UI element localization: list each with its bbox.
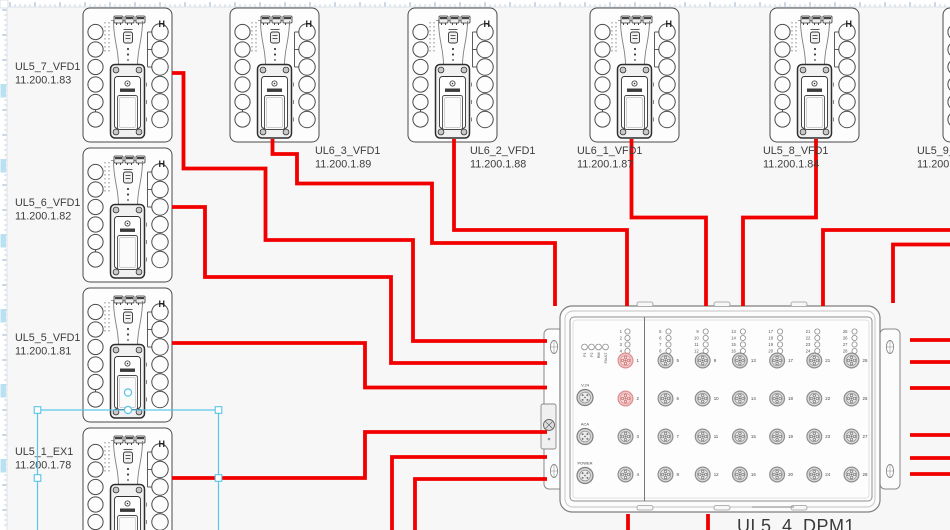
device-UL5_8_VFD1[interactable]: H bbox=[770, 8, 859, 142]
dpm-side-port-ACA bbox=[577, 429, 593, 445]
device-label-UL6_1_VFD1: UL6_1_VFD111.200.1.87 bbox=[577, 145, 642, 171]
dpm-port-14 bbox=[733, 391, 748, 406]
indicator-led bbox=[778, 342, 783, 347]
indicator-led bbox=[815, 329, 820, 334]
wire-w12[interactable] bbox=[893, 245, 950, 304]
dpm-port-number: 17 bbox=[788, 358, 793, 363]
device-label-UL5_7_VFD1: UL5_7_VFD111.200.1.83 bbox=[15, 61, 80, 87]
dpm-port-number: 26 bbox=[863, 396, 868, 401]
dpm-port-number: 18 bbox=[788, 396, 793, 401]
dpm-port-21 bbox=[807, 353, 822, 368]
status-led-FAULT bbox=[603, 344, 609, 350]
indicator-number: 19 bbox=[768, 342, 773, 347]
status-led-label: P2 bbox=[590, 353, 594, 357]
indicator-number: 22 bbox=[806, 336, 811, 341]
device-label-UL6_3_VFD1: UL6_3_VFD111.200.1.89 bbox=[315, 145, 380, 171]
dpm-port-22 bbox=[807, 391, 822, 406]
device-label-UL5_1_EX1: UL5_1_EX111.200.1.78 bbox=[15, 446, 73, 472]
h-symbol: H bbox=[666, 19, 673, 29]
device-label-UL5_8_VFD1: UL5_8_VFD111.200.1.84 bbox=[763, 145, 828, 171]
h-symbol: H bbox=[159, 19, 166, 29]
wire-w6[interactable] bbox=[415, 479, 547, 530]
status-led-label: FAULT bbox=[604, 352, 608, 364]
dpm-port-5 bbox=[658, 353, 673, 368]
dpm-device-label: UL5_4_DPM1 bbox=[737, 516, 855, 530]
status-led-P2 bbox=[589, 344, 595, 350]
indicator-number: 16 bbox=[731, 349, 736, 354]
selection-handle-mid-left[interactable] bbox=[34, 475, 41, 482]
dpm-port-number: 22 bbox=[825, 396, 830, 401]
indicator-led bbox=[815, 335, 820, 340]
dpm-port-23 bbox=[807, 429, 822, 444]
diagram-editor-canvas[interactable]: HHHHHHHHH P1P2RMFAULT12341234V.24ACAPOWE… bbox=[0, 0, 950, 530]
device-label-UL5_5_VFD1: UL5_5_VFD111.200.1.81 bbox=[15, 332, 80, 358]
dpm-port-number: 24 bbox=[825, 472, 830, 477]
wire-UL5_5_VFD1[interactable] bbox=[172, 343, 547, 388]
h-symbol: H bbox=[846, 19, 853, 29]
dpm-port-number: 13 bbox=[751, 358, 756, 363]
dpm-port-number: 14 bbox=[751, 396, 756, 401]
wire-w11[interactable] bbox=[823, 230, 950, 306]
indicator-number: 12 bbox=[694, 349, 699, 354]
indicator-number: 15 bbox=[731, 342, 736, 347]
dpm-port-6 bbox=[658, 391, 673, 406]
device-label-UL5_6_VFD1: UL5_6_VFD111.200.1.82 bbox=[15, 197, 80, 223]
indicator-led bbox=[666, 329, 671, 334]
indicator-led bbox=[740, 335, 745, 340]
dpm-port-number: 10 bbox=[714, 396, 719, 401]
indicator-led bbox=[778, 335, 783, 340]
dpm-port-24 bbox=[807, 467, 822, 482]
wire-UL5_1_EX1[interactable] bbox=[172, 432, 547, 478]
indicator-number: 26 bbox=[843, 336, 848, 341]
device-UL5_4_DPM1[interactable]: P1P2RMFAULT12341234V.24ACAPOWER567856789… bbox=[541, 302, 900, 512]
indicator-led bbox=[666, 335, 671, 340]
dpm-port-number: 27 bbox=[863, 434, 868, 439]
side-port-label: ACA bbox=[581, 422, 590, 427]
dpm-port-3 bbox=[618, 429, 633, 444]
dpm-port-20 bbox=[770, 467, 785, 482]
device-UL6_3_VFD1[interactable]: H bbox=[230, 8, 319, 142]
dpm-port-7 bbox=[658, 429, 673, 444]
indicator-number: 23 bbox=[806, 342, 811, 347]
dpm-port-25 bbox=[844, 353, 859, 368]
dpm-port-12 bbox=[695, 467, 710, 482]
indicator-led bbox=[703, 329, 708, 334]
h-symbol: H bbox=[159, 159, 166, 169]
device-UL5_5_VFD1[interactable]: H bbox=[83, 288, 172, 422]
indicator-number: 28 bbox=[843, 349, 848, 354]
selection-handle-top-left[interactable] bbox=[34, 407, 41, 414]
indicator-led bbox=[740, 329, 745, 334]
indicator-led bbox=[852, 329, 857, 334]
status-led-P1 bbox=[582, 344, 588, 350]
dpm-port-16 bbox=[733, 467, 748, 482]
indicator-led bbox=[852, 335, 857, 340]
h-symbol: H bbox=[484, 19, 491, 29]
indicator-led bbox=[625, 335, 630, 340]
dpm-port-number: 23 bbox=[825, 434, 830, 439]
diagram-svg[interactable]: HHHHHHHHH P1P2RMFAULT12341234V.24ACAPOWE… bbox=[0, 0, 950, 530]
side-port-label: POWER bbox=[577, 461, 592, 466]
indicator-number: 13 bbox=[731, 329, 736, 334]
dpm-port-1 bbox=[618, 353, 633, 368]
dpm-port-9 bbox=[695, 353, 710, 368]
dpm-port-18 bbox=[770, 391, 785, 406]
device-UL6_2_VFD1[interactable]: H bbox=[408, 8, 497, 142]
selection-handle-top-right[interactable] bbox=[215, 407, 222, 414]
device-UL5_7_VFD1[interactable]: H bbox=[83, 8, 172, 142]
rotation-handle[interactable] bbox=[124, 389, 131, 396]
dpm-port-11 bbox=[695, 429, 710, 444]
dpm-port-10 bbox=[695, 391, 710, 406]
status-led-RM bbox=[596, 344, 602, 350]
side-port-label: V.24 bbox=[581, 383, 590, 388]
dpm-port-number: 15 bbox=[751, 434, 756, 439]
dpm-port-26 bbox=[844, 391, 859, 406]
indicator-number: 11 bbox=[694, 342, 699, 347]
indicator-led bbox=[815, 342, 820, 347]
dpm-port-15 bbox=[733, 429, 748, 444]
indicator-number: 25 bbox=[843, 329, 848, 334]
dpm-port-number: 25 bbox=[863, 358, 868, 363]
dpm-layer: P1P2RMFAULT12341234V.24ACAPOWER567856789… bbox=[541, 302, 900, 512]
status-led-label: RM bbox=[597, 352, 601, 358]
dpm-port-19 bbox=[770, 429, 785, 444]
indicator-number: 10 bbox=[694, 336, 699, 341]
indicator-led bbox=[625, 342, 630, 347]
wire-UL6_1_VFD1[interactable] bbox=[632, 139, 707, 306]
device-label-UL5_9_V: UL5_9_V11.200. bbox=[917, 145, 950, 171]
device-UL5_9_V[interactable]: H bbox=[943, 8, 950, 142]
indicator-number: 20 bbox=[768, 349, 773, 354]
indicator-number: 17 bbox=[768, 329, 773, 334]
selection-handle-top-center[interactable] bbox=[124, 406, 131, 413]
indicator-number: 14 bbox=[731, 336, 736, 341]
dpm-port-number: 21 bbox=[825, 358, 830, 363]
selection-handle-mid-right[interactable] bbox=[215, 475, 222, 482]
dpm-side-port-V.24 bbox=[577, 390, 593, 406]
h-symbol: H bbox=[306, 19, 313, 29]
dpm-port-13 bbox=[733, 353, 748, 368]
indicator-led bbox=[852, 342, 857, 347]
dpm-port-number: 12 bbox=[714, 472, 719, 477]
dpm-port-17 bbox=[770, 353, 785, 368]
device-label-UL6_2_VFD1: UL6_2_VFD111.200.1.88 bbox=[470, 145, 535, 171]
dpm-port-number: 28 bbox=[863, 472, 868, 477]
dpm-port-number: 11 bbox=[714, 434, 719, 439]
dpm-port-8 bbox=[658, 467, 673, 482]
indicator-led bbox=[703, 342, 708, 347]
dpm-port-28 bbox=[844, 467, 859, 482]
h-symbol: H bbox=[159, 439, 166, 449]
ruler-corner bbox=[0, 0, 8, 8]
indicator-led bbox=[778, 329, 783, 334]
indicator-led bbox=[703, 335, 708, 340]
dpm-side-port-POWER bbox=[577, 468, 593, 484]
device-UL5_6_VFD1[interactable]: H bbox=[83, 148, 172, 282]
h-symbol: H bbox=[159, 299, 166, 309]
indicator-led bbox=[740, 342, 745, 347]
status-led-label: P1 bbox=[583, 353, 587, 357]
dpm-port-27 bbox=[844, 429, 859, 444]
device-UL5_1_EX1[interactable]: H bbox=[83, 428, 172, 530]
dpm-port-number: 19 bbox=[788, 434, 793, 439]
indicator-number: 27 bbox=[843, 342, 848, 347]
indicator-number: 18 bbox=[768, 336, 773, 341]
indicator-led bbox=[666, 342, 671, 347]
dpm-port-number: 16 bbox=[751, 472, 756, 477]
dpm-port-4 bbox=[618, 467, 633, 482]
dpm-port-2 bbox=[618, 391, 633, 406]
indicator-number: 24 bbox=[806, 349, 811, 354]
indicator-number: 21 bbox=[806, 329, 811, 334]
dpm-port-number: 20 bbox=[788, 472, 793, 477]
indicator-led bbox=[625, 329, 630, 334]
device-UL6_1_VFD1[interactable]: H bbox=[590, 8, 679, 142]
